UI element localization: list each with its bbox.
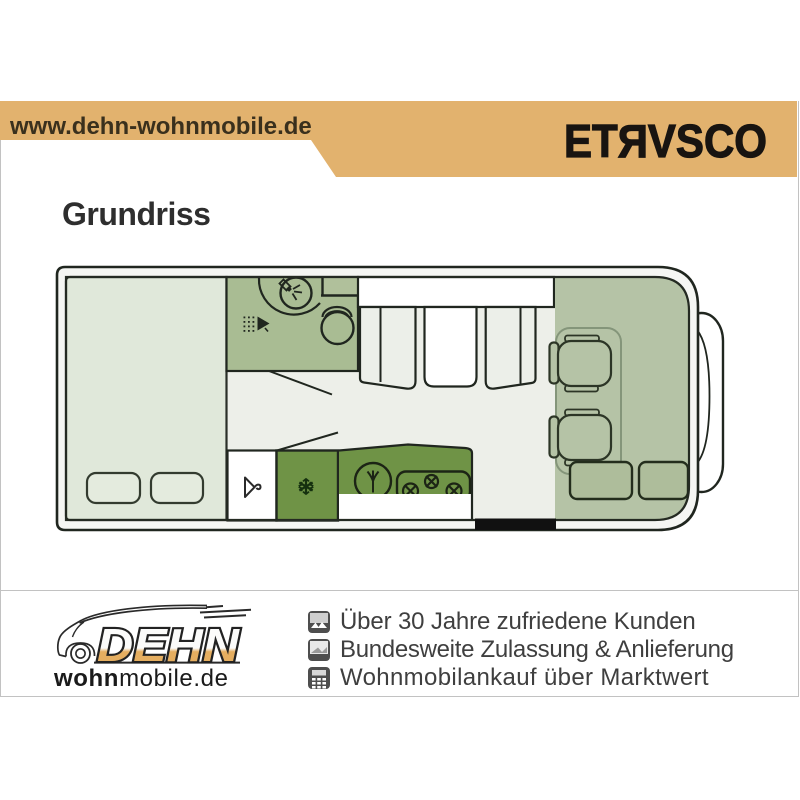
svg-text:DEHN: DEHN [97, 619, 240, 671]
svg-text:wohnmobile.de: wohnmobile.de [53, 665, 229, 692]
